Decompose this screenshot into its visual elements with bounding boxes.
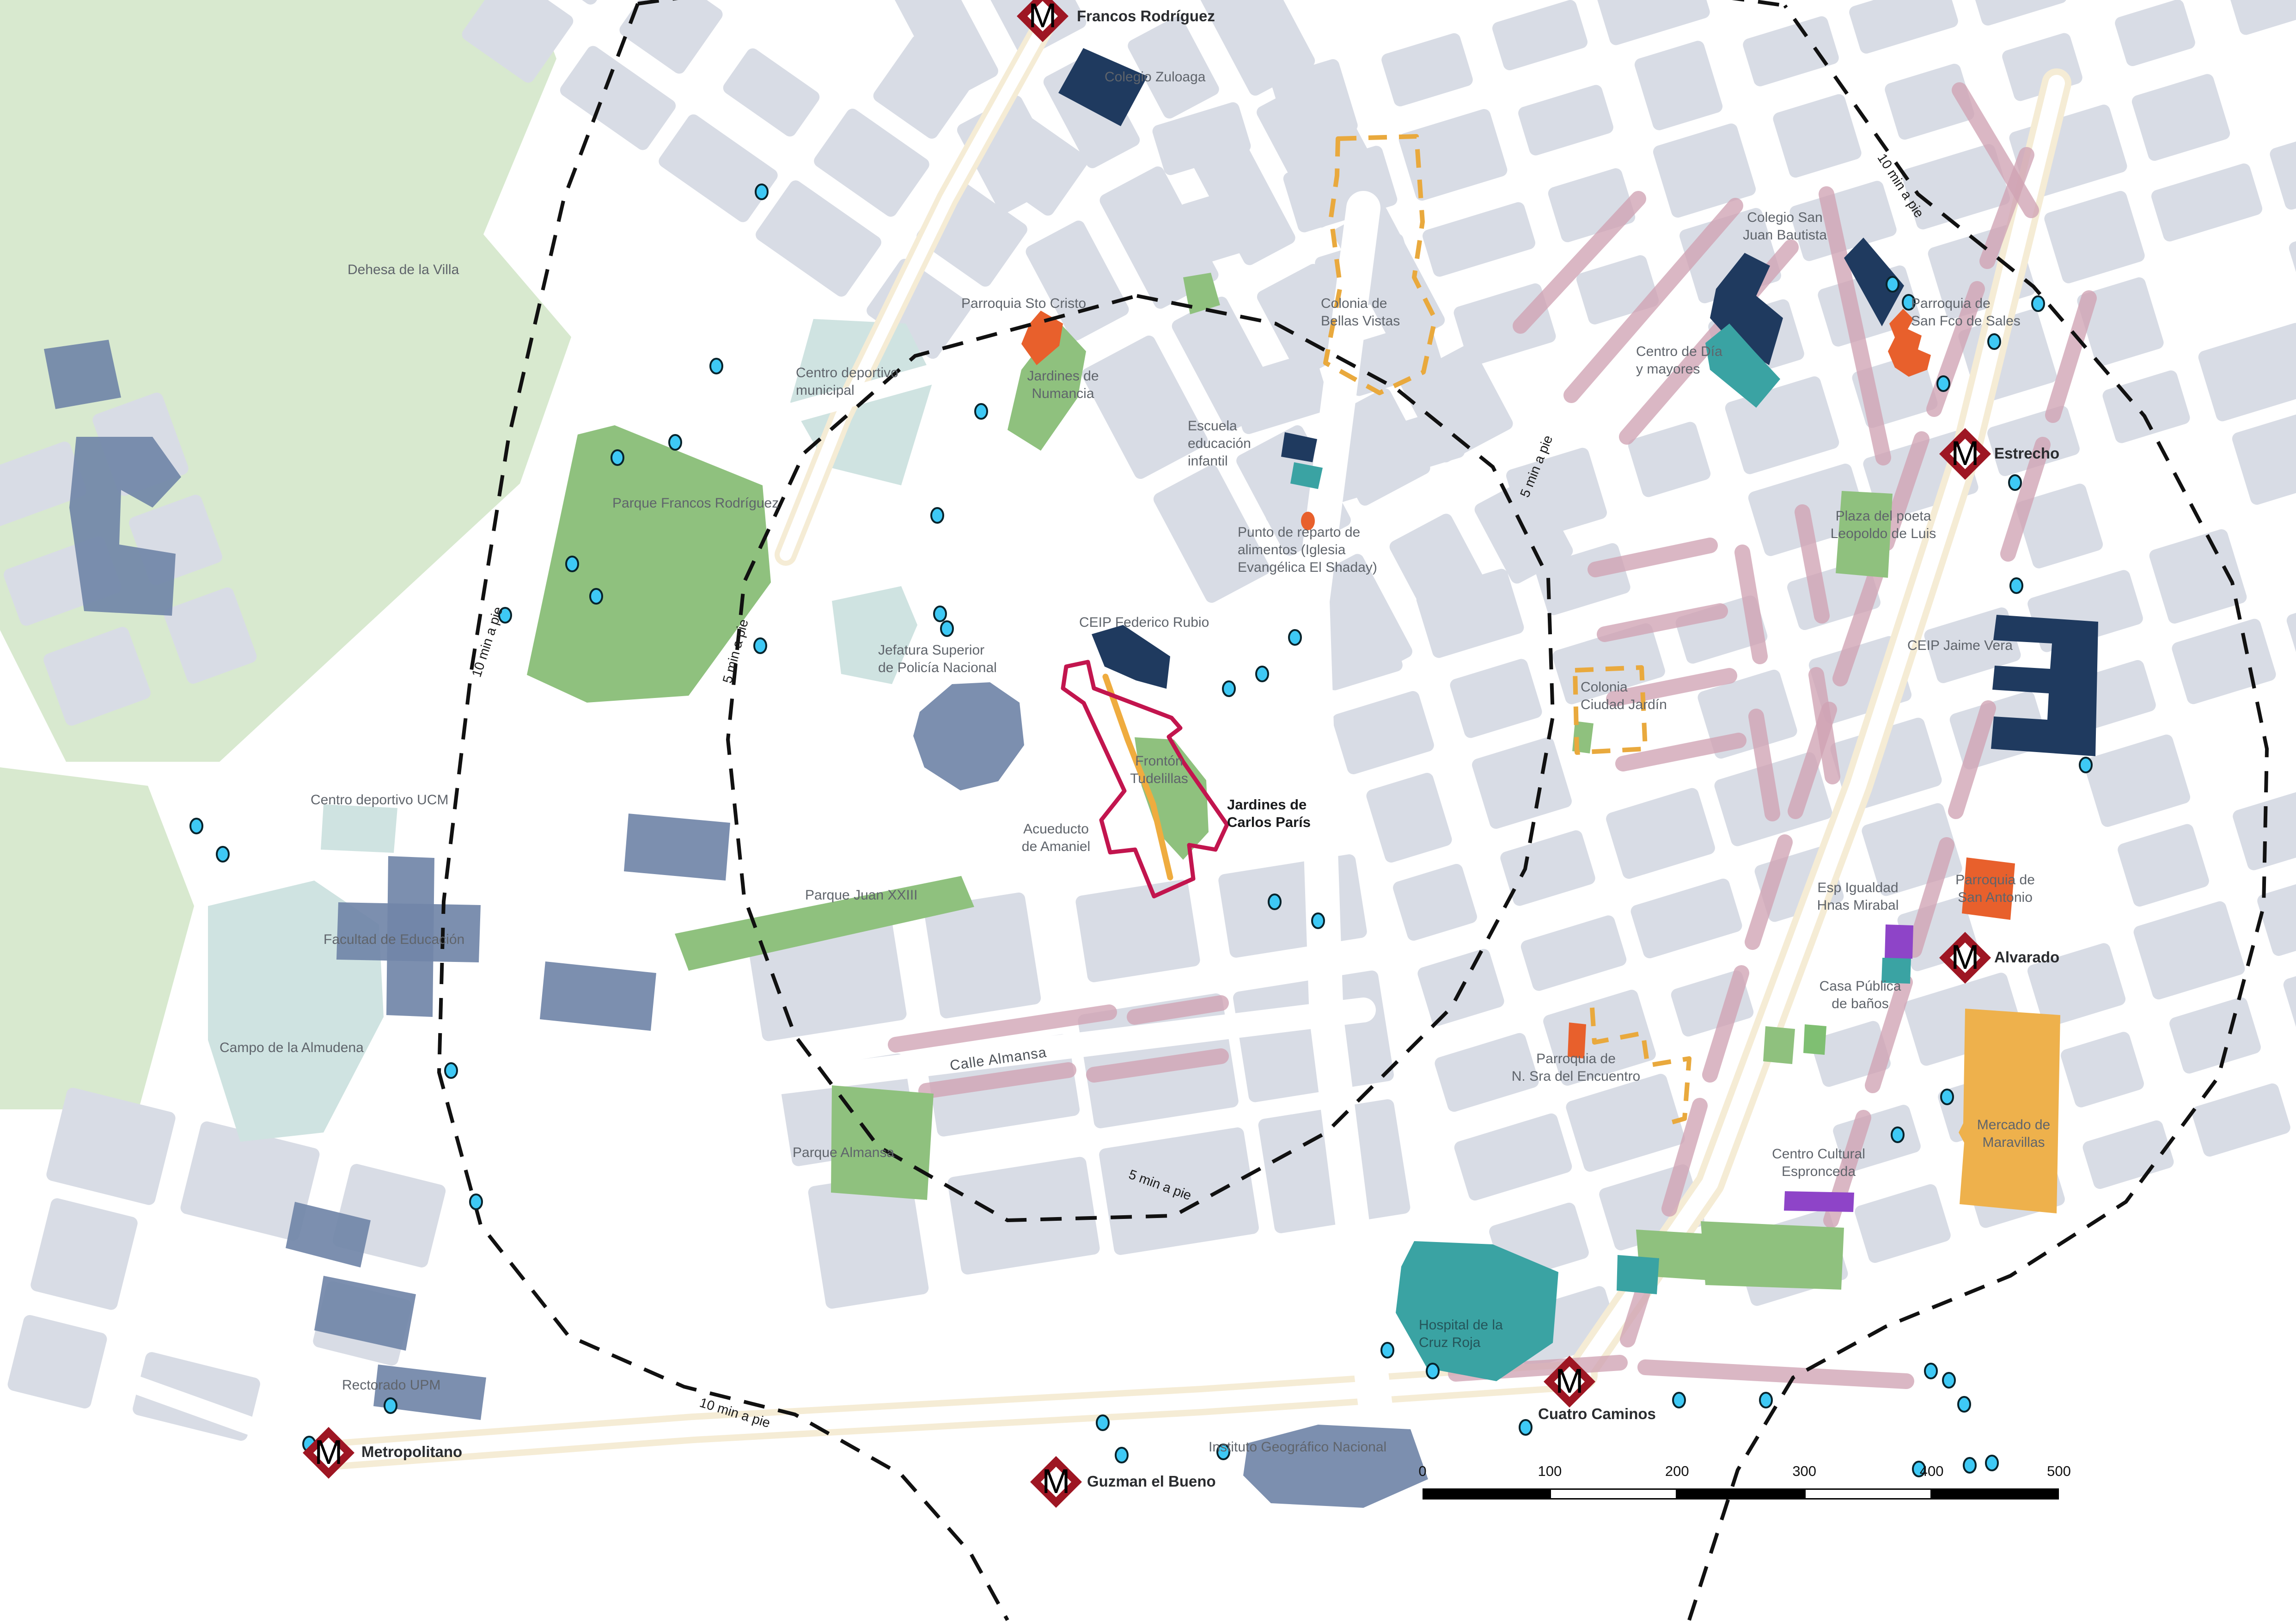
cyan-point-marker xyxy=(1887,277,1899,292)
label-colegio-zuloaga: Colegio Zuloaga xyxy=(1105,68,1205,86)
city-block xyxy=(1593,0,1711,47)
scale-tick-100: 100 xyxy=(1538,1463,1562,1480)
label-line: Maravillas xyxy=(1977,1134,2050,1151)
city-block xyxy=(1217,853,1368,959)
cyan-point-marker xyxy=(1256,667,1268,681)
label-line: Bellas Vistas xyxy=(1321,312,1400,330)
scale-tick-400: 400 xyxy=(1920,1463,1944,1480)
label-line: Parque Juan XXIII xyxy=(805,887,918,904)
label-jefatura-policia: Jefatura Superiorde Policía Nacional xyxy=(878,642,997,677)
label-centro-deportivo-ucm: Centro deportivo UCM xyxy=(311,791,448,809)
label-line: Leopoldo de Luis xyxy=(1831,525,1936,543)
label-line: alimentos (Iglesia xyxy=(1238,541,1377,559)
label-parroquia-del-encuentro: Parroquia deN. Sra del Encuentro xyxy=(1512,1050,1640,1085)
cyan-point-marker xyxy=(385,1398,397,1413)
metro-m-glyph: M xyxy=(314,1433,343,1471)
cyan-point-marker xyxy=(2009,475,2021,490)
label-plaza-del-poeta: Plaza del poetaLeopoldo de Luis xyxy=(1831,508,1936,543)
label-line: Parroquia de xyxy=(1512,1050,1640,1068)
city-block xyxy=(1125,14,1221,121)
scale-tick-200: 200 xyxy=(1665,1463,1689,1480)
label-line: Jefatura Superior xyxy=(878,642,997,659)
label-campo-de-la-almudena: Campo de la Almudena xyxy=(220,1039,364,1057)
city-block xyxy=(1491,0,1589,72)
building-mid-2 xyxy=(540,961,656,1031)
label-line: Campo de la Almudena xyxy=(220,1039,364,1057)
label-line: Hnas Mirabal xyxy=(1817,897,1899,914)
city-block xyxy=(656,112,780,225)
label-line: Acueducto xyxy=(1022,820,1090,838)
label-line: Frontón xyxy=(1130,753,1188,770)
label-line: Centro de Día xyxy=(1636,343,1722,361)
cyan-point-marker xyxy=(931,508,943,523)
city-block xyxy=(1633,39,1724,132)
city-block xyxy=(1499,829,1597,907)
label-line: Casa Pública xyxy=(1820,978,1901,995)
label-line: Espronceda xyxy=(1772,1163,1865,1181)
label-line: Esp Igualdad xyxy=(1817,879,1899,897)
city-block xyxy=(1564,1072,1686,1174)
city-block xyxy=(1519,914,1628,992)
scale-segment xyxy=(1804,1488,1931,1500)
label-line: infantil xyxy=(1188,453,1251,470)
label-line: Dehesa de la Villa xyxy=(348,261,459,279)
metro-m-glyph: M xyxy=(1042,1462,1070,1500)
city-block xyxy=(2113,0,2197,68)
small-green-1 xyxy=(1763,1026,1795,1064)
label-line: CEIP Federico Rubio xyxy=(1079,614,1209,631)
label-parque-francos-rodriguez: Parque Francos Rodríguez xyxy=(612,495,779,512)
city-block xyxy=(2148,528,2248,625)
casa-banos-building xyxy=(1803,1024,1826,1055)
city-block xyxy=(2082,733,2192,829)
city-block xyxy=(1397,107,1509,202)
metro-station-label-alvarado: Alvarado xyxy=(1994,949,2059,966)
label-line: Mercado de xyxy=(1977,1116,2050,1134)
cyan-point-marker xyxy=(1673,1393,1685,1408)
cyan-point-marker xyxy=(754,638,766,653)
label-ceip-federico-rubio: CEIP Federico Rubio xyxy=(1079,614,1209,631)
metro-m-glyph: M xyxy=(1028,0,1057,35)
label-line: educación xyxy=(1188,435,1251,453)
cyan-point-marker xyxy=(1941,1089,1953,1104)
label-line: Parque Francos Rodríguez xyxy=(612,495,779,512)
cyan-point-marker xyxy=(1943,1373,1955,1388)
city-block xyxy=(2132,900,2247,1001)
metro-station-icon-metropolitano: M xyxy=(303,1427,354,1479)
city-block xyxy=(2230,408,2296,507)
city-block xyxy=(1771,92,1863,179)
cyan-point-marker xyxy=(1520,1420,1532,1435)
cyan-point-marker xyxy=(1760,1393,1772,1408)
label-rectorado-upm: Rectorado UPM xyxy=(342,1377,440,1394)
cyan-point-marker xyxy=(1381,1343,1393,1358)
city-block xyxy=(1605,786,1717,880)
label-mercado-de-maravillas: Mercado deMaravillas xyxy=(1977,1116,2050,1151)
cyan-point-marker xyxy=(566,557,578,571)
label-parroquia-de-san-antonio: Parroquia deSan Antonio xyxy=(1955,871,2035,906)
city-block xyxy=(2043,190,2146,285)
cyan-point-marker xyxy=(217,847,229,862)
label-acueducto-de-amaniel: Acueductode Amaniel xyxy=(1022,820,1090,856)
metro-station-label-francos-rodriguez: Francos Rodríguez xyxy=(1077,7,1215,25)
metro-station-label-guzman-el-bueno: Guzman el Bueno xyxy=(1087,1473,1216,1490)
label-line: Punto de reparto de xyxy=(1238,524,1377,541)
city-block xyxy=(2170,617,2278,705)
label-line: Evangélica El Shaday) xyxy=(1238,559,1377,576)
label-line: Centro deportivo UCM xyxy=(311,791,448,809)
city-block xyxy=(946,1156,1100,1276)
mercado-maravillas-building xyxy=(1959,1009,2060,1213)
city-block xyxy=(1331,690,1436,776)
label-line: Colegio San xyxy=(1743,209,1827,226)
label-line: de Amaniel xyxy=(1022,838,1090,856)
cyan-point-marker xyxy=(190,819,202,833)
scale-bar: 0100200300400500 xyxy=(1423,1463,2059,1505)
label-colonia-de-bellas-vistas: Colonia deBellas Vistas xyxy=(1321,295,1400,330)
label-line: Jardines de xyxy=(1027,367,1099,385)
label-line: municipal xyxy=(796,382,898,399)
city-block xyxy=(2081,1119,2175,1190)
label-line: San Fco de Sales xyxy=(1911,312,2021,330)
city-block xyxy=(2197,321,2296,423)
label-line: Carlos París xyxy=(1227,814,1311,831)
city-block xyxy=(721,46,822,139)
city-block xyxy=(2282,958,2296,1043)
label-parque-almansa: Parque Almansa xyxy=(793,1144,894,1162)
cyan-point-marker xyxy=(934,606,946,621)
label-instituto-geografico-nacional: Instituto Geográfico Nacional xyxy=(1209,1438,1386,1456)
label-ceip-jaime-vera: CEIP Jaime Vera xyxy=(1907,637,2013,655)
metro-station-label-estrecho: Estrecho xyxy=(1994,445,2059,462)
label-line: Ciudad Jardín xyxy=(1581,696,1667,714)
label-line: Facultad de Educación xyxy=(324,931,464,949)
label-line: de Policía Nacional xyxy=(878,659,997,677)
west-green-strip xyxy=(0,767,194,1109)
cyan-point-marker xyxy=(1223,681,1235,696)
city-block xyxy=(1853,1182,1952,1264)
metro-m-glyph: M xyxy=(1951,434,1979,472)
building-mid-1 xyxy=(624,814,730,881)
cyan-point-marker xyxy=(975,404,987,419)
label-line: Numancia xyxy=(1027,385,1099,403)
label-line: Colonia de xyxy=(1321,295,1400,312)
metro-m-glyph: M xyxy=(1555,1362,1584,1400)
cyan-point-marker xyxy=(611,450,623,465)
city-block xyxy=(2059,1030,2146,1109)
city-block xyxy=(6,1314,109,1410)
city-map-canvas: MMMMMM Francos RodríguezEstrechoAlvarado… xyxy=(0,0,2296,1622)
label-line: Hospital de la xyxy=(1419,1316,1503,1334)
city-block xyxy=(2101,369,2192,445)
cyan-point-marker xyxy=(1937,376,1949,391)
city-block xyxy=(1453,1112,1573,1202)
cyan-point-marker xyxy=(1289,630,1301,645)
label-line: Plaza del poeta xyxy=(1831,508,1936,525)
label-parque-juan-xxiii: Parque Juan XXIII xyxy=(805,887,918,904)
scale-tick-0: 0 xyxy=(1418,1463,1426,1480)
label-centro-deportivo-municipal: Centro deportivomunicipal xyxy=(796,364,898,399)
metro-station-label-metropolitano: Metropolitano xyxy=(361,1443,462,1461)
city-block xyxy=(1848,0,1960,55)
city-block xyxy=(1392,862,1479,942)
label-dehesa-de-la-villa: Dehesa de la Villa xyxy=(348,261,459,279)
label-line: Juan Bautista xyxy=(1743,226,1827,244)
metro-m-glyph: M xyxy=(1951,938,1979,976)
label-line: CEIP Jaime Vera xyxy=(1907,637,2013,655)
cyan-point-marker xyxy=(2010,578,2022,593)
label-line: Colonia xyxy=(1581,679,1667,696)
cyan-point-marker xyxy=(590,589,602,604)
label-jardines-de-carlos-paris: Jardines deCarlos París xyxy=(1227,796,1311,831)
label-colonia-ciudad-jardin: ColoniaCiudad Jardín xyxy=(1581,679,1667,714)
cyan-point-marker xyxy=(1988,334,2000,349)
label-line: Parroquia de xyxy=(1955,871,2035,889)
city-block xyxy=(2268,124,2296,211)
label-colegio-san-juan-bautista: Colegio SanJuan Bautista xyxy=(1743,209,1827,244)
city-block xyxy=(1380,31,1475,108)
city-block xyxy=(2287,213,2296,293)
ceip-jaime-vera-building xyxy=(1991,615,2098,756)
label-centro-cultural-espronceda: Centro CulturalEspronceda xyxy=(1772,1145,1865,1181)
label-line: N. Sra del Encuentro xyxy=(1512,1068,1640,1085)
label-hospital-cruz-roja: Hospital de laCruz Roja xyxy=(1419,1316,1503,1352)
label-casa-publica-de-banos: Casa Públicade baños xyxy=(1820,978,1901,1013)
city-block xyxy=(1448,657,1544,740)
label-fronton-tudelillas: FrontónTudelillas xyxy=(1130,753,1188,788)
cyan-point-marker xyxy=(941,621,953,636)
cyan-point-marker xyxy=(669,435,681,450)
label-line: Parroquia de xyxy=(1911,295,2021,312)
scale-segment xyxy=(1932,1488,2059,1500)
cyan-point-marker xyxy=(2032,296,2044,311)
city-block xyxy=(2130,73,2231,163)
label-centro-de-dia-y-mayores: Centro de Díay mayores xyxy=(1636,343,1722,378)
label-line: Escuela xyxy=(1188,417,1251,435)
scale-segment xyxy=(1423,1488,1550,1500)
city-block xyxy=(1964,0,2069,27)
pink-street-strip xyxy=(1645,1367,1906,1381)
label-facultad-de-educacion: Facultad de Educación xyxy=(324,931,464,949)
city-block xyxy=(1517,83,1615,157)
cyan-point-marker xyxy=(2080,758,2092,772)
label-line: Colegio Zuloaga xyxy=(1105,68,1205,86)
city-block xyxy=(2116,822,2211,908)
city-block xyxy=(29,1197,139,1311)
scale-segment xyxy=(1550,1488,1677,1500)
city-block xyxy=(1365,771,1453,864)
label-line: Parroquia Sto Cristo xyxy=(961,295,1086,312)
label-jardines-de-numancia: Jardines deNumancia xyxy=(1027,367,1099,403)
label-esp-igualdad-hnas-mirabal: Esp IgualdadHnas Mirabal xyxy=(1817,879,1899,914)
ucm-sports-court xyxy=(321,804,397,853)
city-block xyxy=(1629,877,1744,960)
label-line: Cruz Roja xyxy=(1419,1334,1503,1352)
cyan-point-marker xyxy=(1116,1448,1128,1463)
city-block xyxy=(45,1086,177,1206)
espronceda-building xyxy=(1784,1191,1854,1212)
building-small-topleft xyxy=(44,340,121,409)
cyan-point-marker xyxy=(445,1063,457,1078)
label-line: San Antonio xyxy=(1955,889,2035,906)
label-line: Tudelillas xyxy=(1130,770,1188,788)
city-block xyxy=(1421,201,1537,278)
city-block xyxy=(2168,996,2263,1075)
label-parroquia-san-fco-de-sales: Parroquia deSan Fco de Sales xyxy=(1911,295,2021,330)
hospital-annex xyxy=(1617,1255,1659,1294)
scale-tick-300: 300 xyxy=(1792,1463,1816,1480)
city-block xyxy=(1471,736,1574,831)
label-line: Centro Cultural xyxy=(1772,1145,1865,1163)
cyan-point-marker xyxy=(470,1194,482,1209)
city-block xyxy=(2149,162,2264,243)
metro-station-label-cuatro-caminos: Cuatro Caminos xyxy=(1538,1405,1656,1423)
metro-station-icon-guzman-el-bueno: M xyxy=(1030,1456,1082,1508)
label-line: Instituto Geográfico Nacional xyxy=(1209,1438,1386,1456)
label-line: Rectorado UPM xyxy=(342,1377,440,1394)
cyan-point-marker xyxy=(756,184,768,199)
label-escuela-educacion-infantil: Escuelaeducacióninfantil xyxy=(1188,417,1251,470)
label-parroquia-sto-cristo: Parroquia Sto Cristo xyxy=(961,295,1086,312)
city-block xyxy=(1075,879,1201,983)
city-block xyxy=(2225,0,2296,37)
label-line: Jardines de xyxy=(1227,796,1311,814)
cyan-point-marker xyxy=(1958,1397,1970,1412)
cyan-point-marker xyxy=(1892,1127,1904,1142)
jefatura-building xyxy=(913,682,1024,790)
label-line: Centro deportivo xyxy=(796,364,898,382)
cyan-point-marker xyxy=(1925,1364,1937,1378)
cyan-point-marker xyxy=(1097,1415,1109,1430)
cyan-point-marker xyxy=(710,359,722,373)
label-line: y mayores xyxy=(1636,361,1722,378)
label-punto-de-reparto: Punto de reparto dealimentos (IglesiaEva… xyxy=(1238,524,1377,576)
city-block xyxy=(1741,15,1840,88)
city-block xyxy=(2285,589,2296,665)
label-line: Parque Almansa xyxy=(793,1144,894,1162)
cyan-point-marker xyxy=(1269,894,1281,909)
cyan-point-marker xyxy=(1312,913,1324,928)
cyan-point-marker xyxy=(1427,1364,1439,1378)
label-line: de baños xyxy=(1820,995,1901,1013)
esp-igualdad-building xyxy=(1885,924,1913,959)
scale-tick-500: 500 xyxy=(2047,1463,2071,1480)
scale-segment xyxy=(1677,1488,1804,1500)
